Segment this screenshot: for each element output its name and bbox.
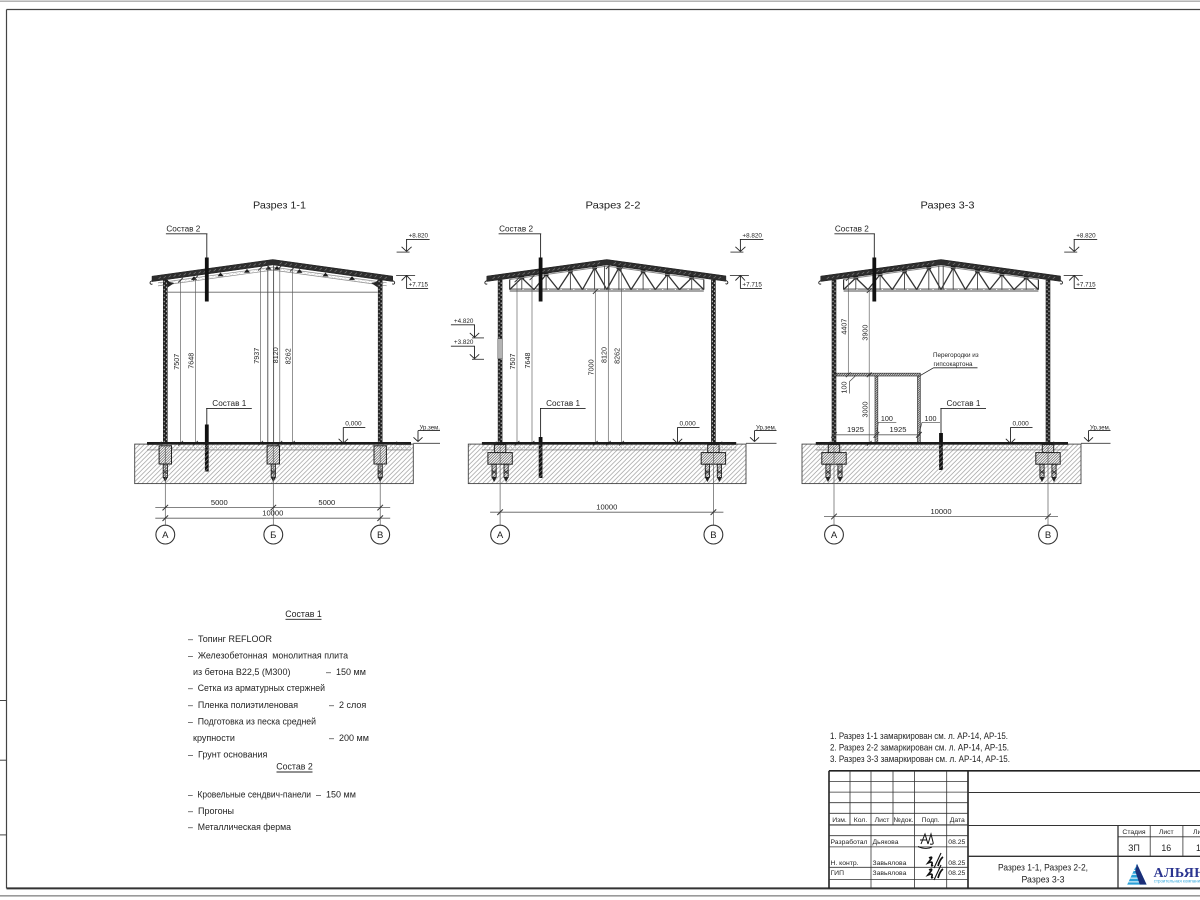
svg-text:3000: 3000 xyxy=(860,402,869,418)
svg-text:7507: 7507 xyxy=(172,354,181,370)
svg-text:8262: 8262 xyxy=(284,348,293,364)
svg-text:Завьялова: Завьялова xyxy=(873,860,907,867)
svg-text:7000: 7000 xyxy=(587,359,596,375)
svg-text:Разрез 3-3: Разрез 3-3 xyxy=(921,201,975,212)
svg-text:0,000: 0,000 xyxy=(345,421,362,428)
svg-text:Подп.: Подп. xyxy=(922,817,940,824)
svg-text:– Прогоны: – Прогоны xyxy=(188,806,234,816)
svg-text:А: А xyxy=(162,530,169,541)
svg-text:7507: 7507 xyxy=(508,354,517,370)
svg-text:Листов: Листов xyxy=(1193,829,1200,836)
svg-text:Разрез 2-2: Разрез 2-2 xyxy=(586,201,641,212)
svg-text:Завьялова: Завьялова xyxy=(873,870,907,877)
svg-text:Лист: Лист xyxy=(875,817,890,824)
svg-text:– 2 слоя: – 2 слоя xyxy=(329,700,366,710)
svg-text:строительная компания: строительная компания xyxy=(1154,878,1200,883)
svg-text:– Топинг REFLOOR: – Топинг REFLOOR xyxy=(188,634,272,644)
svg-text:5000: 5000 xyxy=(211,498,228,507)
svg-text:Перегородки из: Перегородки из xyxy=(933,352,979,359)
svg-text:08.25: 08.25 xyxy=(948,860,965,867)
svg-text:– Металлическая ферма: – Металлическая ферма xyxy=(188,822,291,832)
svg-text:+8.820: +8.820 xyxy=(1076,232,1096,239)
svg-text:Состав 2: Состав 2 xyxy=(276,762,313,772)
svg-text:10000: 10000 xyxy=(930,507,951,516)
svg-text:+8.820: +8.820 xyxy=(742,232,762,239)
svg-text:3. Разрез 3-3 замаркирован см.: 3. Разрез 3-3 замаркирован см. л. АР-14,… xyxy=(830,754,1010,764)
svg-text:Дьякова: Дьякова xyxy=(873,839,899,846)
svg-text:Разрез 3-3: Разрез 3-3 xyxy=(1022,875,1065,885)
svg-text:+7.715: +7.715 xyxy=(409,282,429,289)
svg-text:Разрез 1-1: Разрез 1-1 xyxy=(253,201,306,212)
svg-text:10000: 10000 xyxy=(596,503,617,512)
svg-text:А: А xyxy=(831,530,838,541)
svg-text:1925: 1925 xyxy=(847,425,864,434)
svg-text:1925: 1925 xyxy=(890,425,907,434)
svg-text:8120: 8120 xyxy=(600,347,609,363)
svg-text:Б: Б xyxy=(270,530,276,541)
svg-text:Лист: Лист xyxy=(1159,829,1174,836)
svg-text:– 200 мм: – 200 мм xyxy=(329,733,369,743)
svg-text:Разрез 1-1, Разрез 2-2,: Разрез 1-1, Разрез 2-2, xyxy=(998,863,1088,873)
svg-text:08.25: 08.25 xyxy=(948,870,965,877)
svg-text:+7.715: +7.715 xyxy=(742,282,762,289)
svg-text:гипсокартона: гипсокартона xyxy=(934,361,973,368)
svg-text:2. Разрез 2-2 замаркирован см.: 2. Разрез 2-2 замаркирован см. л. АР-14,… xyxy=(830,742,1009,752)
svg-text:3900: 3900 xyxy=(860,325,869,341)
svg-text:В: В xyxy=(710,530,716,541)
svg-text:8120: 8120 xyxy=(271,347,280,363)
svg-text:5000: 5000 xyxy=(318,498,335,507)
svg-text:Кол.: Кол. xyxy=(854,817,868,824)
svg-text:Состав 1: Состав 1 xyxy=(947,399,981,408)
svg-text:Н. контр.: Н. контр. xyxy=(831,860,859,867)
svg-text:– 150 мм: – 150 мм xyxy=(326,667,366,677)
svg-text:16: 16 xyxy=(1161,843,1171,853)
svg-text:– Кровельные сендвич-панели: – Кровельные сендвич-панели xyxy=(188,790,311,800)
svg-text:100: 100 xyxy=(881,414,893,423)
svg-text:– Железобетонная монолитная: – Железобетонная монолитная плита xyxy=(188,651,348,661)
svg-text:ГИП: ГИП xyxy=(831,870,845,877)
svg-text:Дата: Дата xyxy=(950,817,965,824)
svg-text:Состав 1: Состав 1 xyxy=(285,609,322,619)
svg-text:А: А xyxy=(497,530,504,541)
svg-text:+4.820: +4.820 xyxy=(454,318,474,325)
svg-text:Состав 1: Состав 1 xyxy=(546,399,580,408)
svg-text:1. Разрез 1-1 замаркирован см.: 1. Разрез 1-1 замаркирован см. л. АР-14,… xyxy=(830,731,1008,741)
svg-text:В: В xyxy=(377,530,383,541)
svg-text:– Пленка полиэтиленовая: – Пленка полиэтиленовая xyxy=(188,700,298,710)
svg-text:№док.: №док. xyxy=(894,817,914,824)
svg-text:Состав 1: Состав 1 xyxy=(212,399,246,408)
svg-text:+3.820: +3.820 xyxy=(454,339,474,346)
svg-text:– Грунт основания: – Грунт основания xyxy=(188,750,268,760)
svg-text:7648: 7648 xyxy=(523,353,532,369)
svg-text:100: 100 xyxy=(840,382,849,394)
svg-text:Состав 2: Состав 2 xyxy=(835,225,869,234)
svg-text:7648: 7648 xyxy=(187,353,196,369)
svg-text:Состав 2: Состав 2 xyxy=(499,225,533,234)
svg-text:0,000: 0,000 xyxy=(1013,421,1030,428)
svg-text:+7.715: +7.715 xyxy=(1076,282,1096,289)
svg-text:ЗП: ЗП xyxy=(1128,843,1140,853)
svg-text:– Подготовка из песка средней: – Подготовка из песка средней xyxy=(188,717,316,727)
svg-text:7937: 7937 xyxy=(252,348,261,364)
svg-text:10000: 10000 xyxy=(262,509,283,518)
svg-text:100: 100 xyxy=(925,414,937,423)
svg-text:08.25: 08.25 xyxy=(948,839,965,846)
svg-text:17: 17 xyxy=(1196,843,1200,853)
svg-text:В: В xyxy=(1045,530,1051,541)
svg-text:Состав 2: Состав 2 xyxy=(166,225,200,234)
svg-text:– Сетка из арматурных стержне: – Сетка из арматурных стержней xyxy=(188,683,325,693)
svg-text:из бетона В22,5 (М300): из бетона В22,5 (М300) xyxy=(193,667,290,677)
svg-text:Изм.: Изм. xyxy=(832,817,847,824)
svg-text:крупности: крупности xyxy=(193,733,235,743)
svg-text:Разработал: Разработал xyxy=(831,838,868,846)
svg-text:4407: 4407 xyxy=(840,319,849,335)
svg-text:– 150 мм: – 150 мм xyxy=(316,790,356,800)
svg-text:0,000: 0,000 xyxy=(680,421,697,428)
svg-text:8262: 8262 xyxy=(613,348,622,364)
svg-text:Стадия: Стадия xyxy=(1122,829,1145,836)
svg-text:+8.820: +8.820 xyxy=(409,232,429,239)
